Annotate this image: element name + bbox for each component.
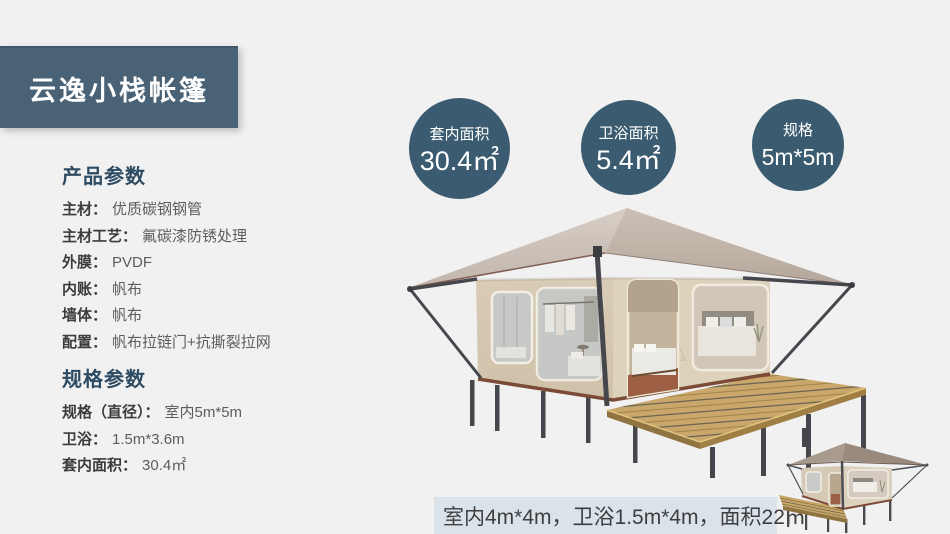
stat-label: 卫浴面积	[598, 122, 658, 143]
tent-roof	[408, 208, 852, 288]
stat-badge-bath-area: 卫浴面积 5.4㎡	[581, 100, 676, 195]
tent-window-wardrobe	[537, 288, 602, 380]
param-label: 内账：	[62, 281, 107, 298]
param-label: 套内面积：	[62, 457, 137, 474]
spec-params-section: 规格参数 规格（直径）：室内5m*5m 卫浴：1.5m*3.6m 套内面积：30…	[62, 363, 402, 480]
param-row: 规格（直径）：室内5m*5m	[62, 400, 402, 427]
variant-footnote: 室内4m*4m，卫浴1.5m*4m，面积22㎡	[434, 497, 777, 534]
thumbnail-tent-photo	[745, 428, 950, 534]
param-label: 主材：	[62, 201, 107, 218]
param-value: PVDF	[112, 254, 152, 271]
tent-window-left	[492, 292, 532, 363]
param-value: 氟碳漆防锈处理	[142, 228, 247, 245]
page-title: 云逸小栈帐篷	[29, 69, 209, 108]
param-value: 帆布	[112, 307, 142, 324]
param-value: 帆布拉链门+抗撕裂拉网	[112, 334, 271, 351]
slide: 云逸小栈帐篷 产品参数 主材：优质碳钢钢管 主材工艺：氟碳漆防锈处理 外膜：PV…	[0, 0, 950, 534]
product-params-section: 产品参数 主材：优质碳钢钢管 主材工艺：氟碳漆防锈处理 外膜：PVDF 内账：帆…	[62, 160, 402, 356]
tent-door	[628, 280, 678, 397]
param-label: 规格（直径）：	[62, 404, 160, 421]
stat-label: 套内面积	[429, 123, 489, 144]
param-label: 外膜：	[62, 254, 107, 271]
stat-label: 规格	[783, 119, 813, 140]
param-value: 优质碳钢钢管	[112, 201, 202, 218]
stat-badge-size: 规格 5m*5m	[752, 99, 844, 191]
param-row: 内账：帆布	[62, 277, 402, 304]
stat-value: 30.4㎡	[420, 148, 500, 175]
thumb-stray-legs	[762, 428, 806, 447]
title-banner: 云逸小栈帐篷	[0, 46, 238, 128]
stat-badge-interior-area: 套内面积 30.4㎡	[409, 98, 510, 199]
param-row: 套内面积：30.4㎡	[62, 453, 402, 480]
section-heading: 产品参数	[62, 160, 402, 189]
param-row: 墙体：帆布	[62, 303, 402, 330]
param-value: 1.5m*3.6m	[112, 431, 185, 448]
param-label: 主材工艺：	[62, 228, 137, 245]
param-label: 配置：	[62, 334, 107, 351]
tent-window-bedroom	[693, 285, 768, 370]
param-row: 卫浴：1.5m*3.6m	[62, 427, 402, 454]
param-row: 配置：帆布拉链门+抗撕裂拉网	[62, 330, 402, 357]
param-row: 主材：优质碳钢钢管	[62, 197, 402, 224]
thumb-roof	[788, 443, 927, 465]
param-value: 帆布	[112, 281, 142, 298]
stat-value: 5m*5m	[762, 144, 835, 171]
param-row: 外膜：PVDF	[62, 250, 402, 277]
section-heading: 规格参数	[62, 363, 402, 392]
param-value: 室内5m*5m	[165, 404, 243, 421]
param-label: 卫浴：	[62, 431, 107, 448]
param-label: 墙体：	[62, 307, 107, 324]
param-value: 30.4㎡	[142, 457, 186, 474]
stat-value: 5.4㎡	[596, 147, 661, 174]
param-row: 主材工艺：氟碳漆防锈处理	[62, 224, 402, 251]
